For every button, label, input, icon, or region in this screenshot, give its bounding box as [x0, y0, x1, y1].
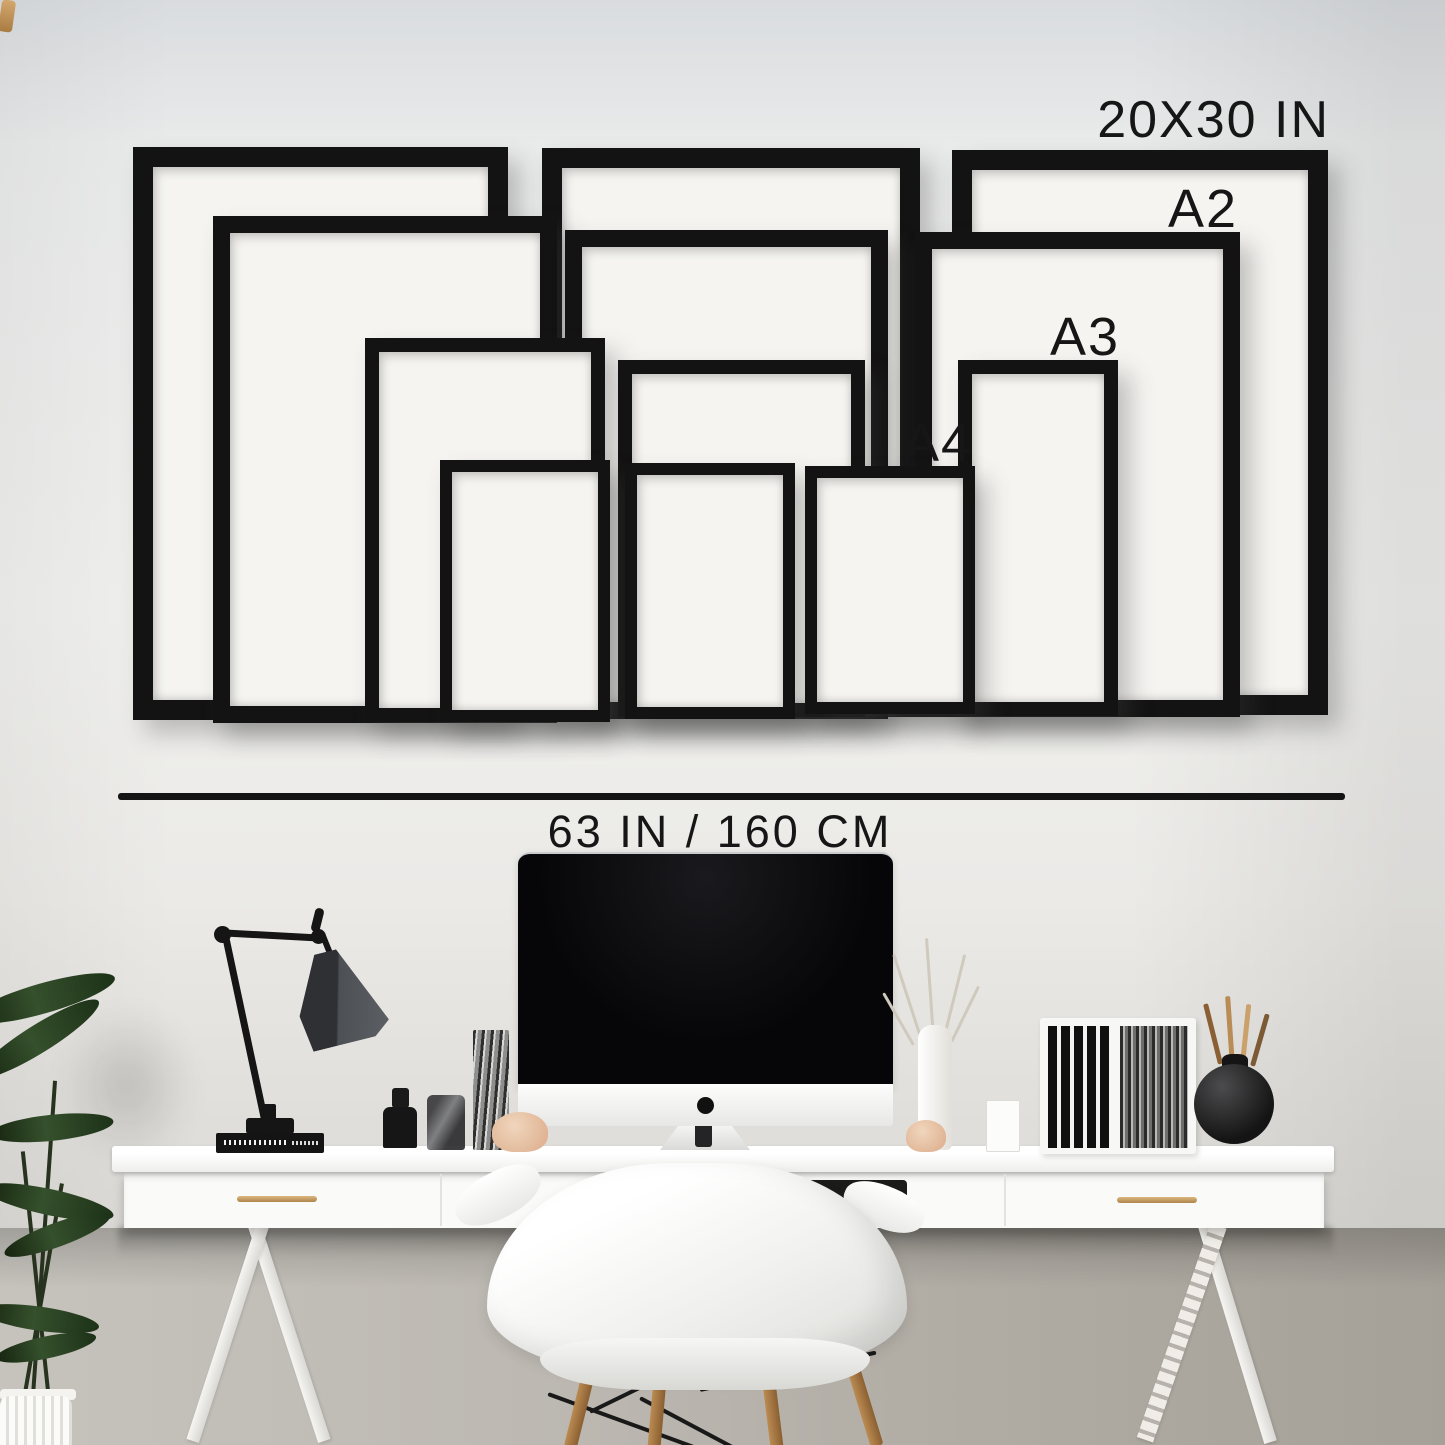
book-spine-text	[224, 1140, 286, 1145]
chair-seat-edge	[540, 1338, 870, 1390]
lamp-head-joint	[311, 929, 326, 944]
size-label-a4: A4	[903, 412, 973, 474]
book-spine-text-2	[292, 1141, 318, 1145]
drawer-seam-right	[1004, 1174, 1006, 1226]
measurement-line	[118, 793, 1345, 800]
black-record-spines	[1048, 1026, 1110, 1148]
bottle-cap	[392, 1088, 409, 1108]
drawer-handle-left	[237, 1196, 317, 1202]
lamp-base	[246, 1118, 294, 1134]
frame-a4-left	[440, 460, 610, 722]
white-card-box	[986, 1100, 1020, 1152]
gray-record-spines	[1120, 1026, 1188, 1148]
drawer-handle-right	[1117, 1197, 1197, 1203]
lamp-elbow-joint	[214, 926, 231, 943]
size-label-a3: A3	[1050, 306, 1120, 368]
frame-a3-right	[958, 360, 1118, 716]
computer-screen	[518, 852, 893, 1086]
glass-jar	[427, 1095, 465, 1150]
drawer-seam-left	[440, 1174, 442, 1226]
wall-width-label: 63 IN / 160 CM	[400, 806, 1040, 858]
black-sphere-vase	[1194, 1064, 1274, 1144]
imac-stand-slot	[695, 1126, 712, 1147]
size-label-20x30: 20X30 IN	[1085, 90, 1330, 150]
computer-logo-icon	[697, 1097, 714, 1114]
peach-ornament	[492, 1112, 548, 1152]
frame-a4-right	[805, 466, 975, 714]
lamp-shadow	[58, 1005, 198, 1165]
size-label-a2: A2	[1168, 178, 1238, 240]
plant-pot	[0, 1396, 72, 1445]
frame-a4-middle	[625, 463, 795, 719]
room-scene: 20X30 IN A2 A3 A4 63 IN / 160 CM	[0, 0, 1445, 1445]
peach-ornament-small	[906, 1120, 946, 1152]
black-bottle	[383, 1107, 417, 1148]
